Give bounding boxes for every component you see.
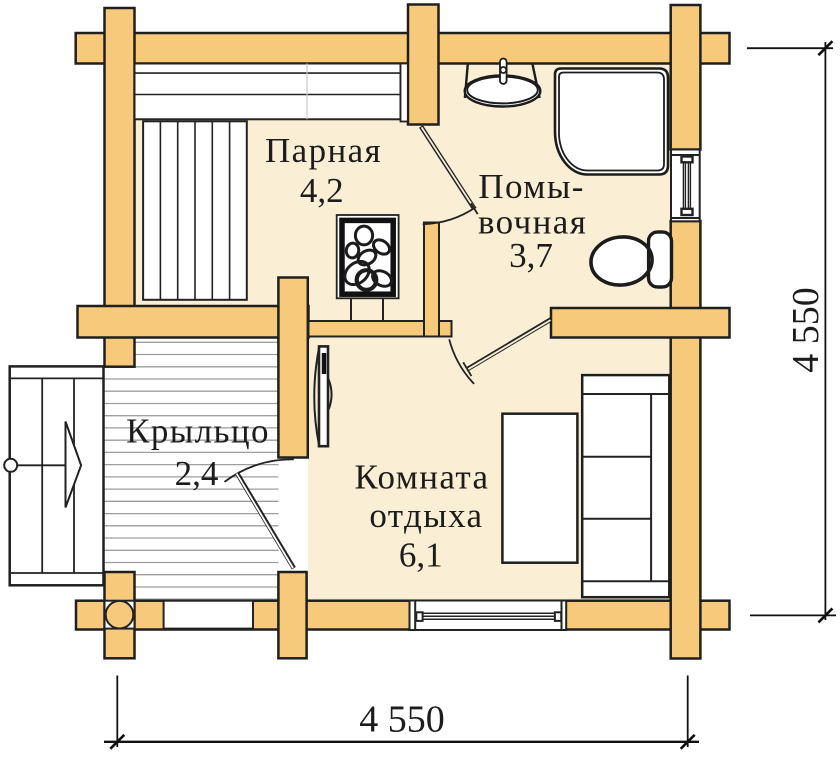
svg-text:4 550: 4 550 bbox=[785, 287, 827, 373]
svg-text:4,2: 4,2 bbox=[300, 171, 344, 210]
svg-text:2,4: 2,4 bbox=[175, 454, 219, 493]
svg-text:Помы-: Помы- bbox=[478, 167, 584, 206]
svg-text:3,7: 3,7 bbox=[509, 236, 553, 275]
svg-text:6,1: 6,1 bbox=[399, 536, 443, 575]
svg-text:Крыльцо: Крыльцо bbox=[126, 412, 270, 451]
svg-text:отдыха: отдыха bbox=[369, 496, 483, 535]
svg-text:4 550: 4 550 bbox=[359, 698, 445, 740]
svg-text:Комната: Комната bbox=[354, 458, 489, 497]
svg-text:Парная: Парная bbox=[265, 131, 382, 170]
